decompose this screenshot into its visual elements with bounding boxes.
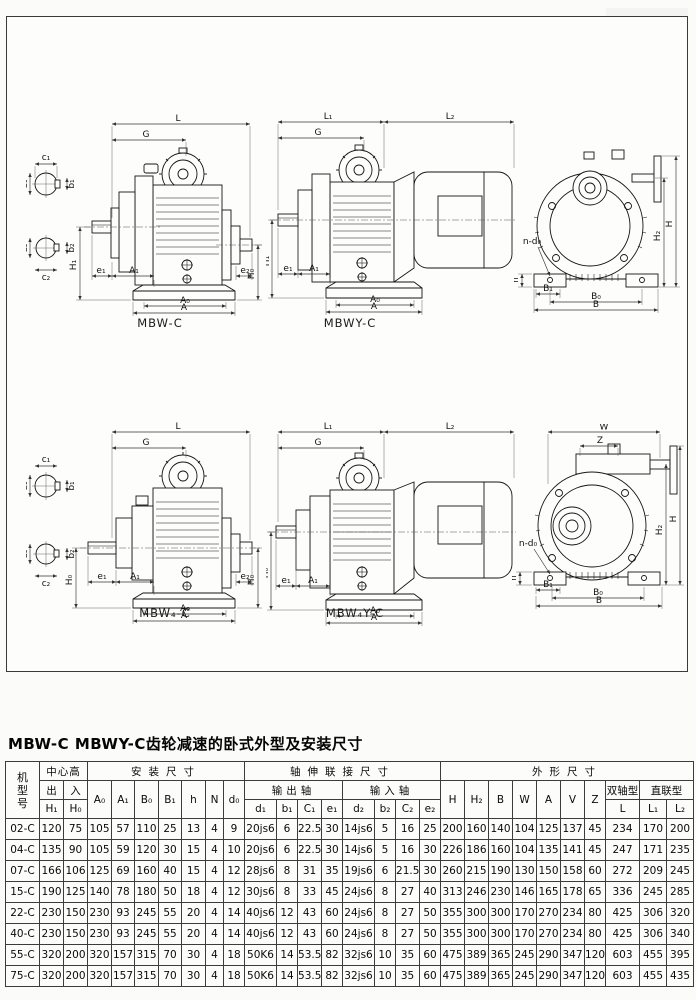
table-cell: 215 (465, 861, 489, 882)
table-cell: 10 (375, 945, 396, 966)
table-cell: 200 (441, 819, 465, 840)
table-cell: 146 (513, 882, 537, 903)
header-B1: B₁ (159, 781, 182, 819)
table-cell: 90 (64, 840, 88, 861)
table-cell: 55 (159, 924, 182, 945)
dim-b1: b₁ (67, 481, 77, 491)
table-cell: 4 (206, 966, 224, 987)
table-cell: 80 (585, 924, 606, 945)
table-row: 22-C23015023093245552041440js612436024js… (6, 903, 694, 924)
table-cell: 365 (489, 966, 513, 987)
drawing-mbw4yc-side-view: L₁ L₂ G H₀ e₁ A₁ A₀ A (266, 420, 518, 627)
table-cell: 6 (277, 819, 298, 840)
table-cell: 10 (375, 966, 396, 987)
header-model: 机 型 号 (6, 762, 40, 819)
table-cell: 5 (375, 840, 396, 861)
header-C2: C₂ (396, 800, 420, 819)
dim-G: G (315, 128, 322, 138)
table-cell: 270 (537, 903, 561, 924)
table-cell: 30js6 (245, 882, 277, 903)
dim-B1: B₁ (543, 580, 553, 590)
dim-A1: A₁ (129, 266, 139, 276)
table-row: 40-C23015023093245552041440js612436024js… (6, 924, 694, 945)
table-cell: 603 (606, 945, 640, 966)
table-cell: 315 (135, 966, 159, 987)
table-cell: 25 (420, 819, 441, 840)
table-cell: 166 (40, 861, 64, 882)
header-dual-shaft: 双轴型 (606, 781, 640, 800)
table-cell: 4 (206, 924, 224, 945)
table-cell: 171 (640, 840, 667, 861)
table-cell: 30 (322, 819, 343, 840)
table-cell: 125 (64, 882, 88, 903)
housing (534, 150, 661, 287)
model-cell: 15-C (6, 882, 40, 903)
dim-G: G (143, 438, 150, 448)
table-cell: 32js6 (343, 945, 375, 966)
table-cell: 125 (537, 819, 561, 840)
header-input-shaft: 输入轴 (343, 781, 441, 800)
table-cell: 22.5 (298, 840, 322, 861)
table-cell: 60 (322, 903, 343, 924)
table-cell: 31 (298, 861, 322, 882)
table-cell: 320 (88, 945, 112, 966)
table-cell: 165 (537, 882, 561, 903)
model-cell: 40-C (6, 924, 40, 945)
table-cell: 300 (489, 903, 513, 924)
table-cell: 35 (396, 966, 420, 987)
table-cell: 50K6 (245, 945, 277, 966)
table-cell: 190 (489, 861, 513, 882)
table-cell: 8 (375, 903, 396, 924)
table-cell: 27 (396, 882, 420, 903)
table-cell: 245 (513, 966, 537, 987)
table-header: 机 型 号 中心高 安装尺寸 轴伸联接尺寸 外形尺寸 出 入 A₀ A₁ B₀ … (6, 762, 694, 819)
drawing-mbwc-side-view: c₁ b₁ d₁ c₂ b₂ d₂ (26, 112, 264, 317)
model-cell: 04-C (6, 840, 40, 861)
header-H: H (441, 781, 465, 819)
table-cell: 200 (64, 966, 88, 987)
table-cell: 245 (135, 924, 159, 945)
dim-e1: e₁ (96, 266, 106, 276)
table-cell: 10 (224, 840, 245, 861)
catalog-page: { "page": { "title": "MBW-C MBWY-C齿轮减速的卧… (0, 0, 696, 1000)
table-cell: 170 (513, 924, 537, 945)
table-cell: 12 (224, 882, 245, 903)
table-cell: 20 (182, 903, 206, 924)
dim-d2: d₂ (26, 243, 30, 253)
table-cell: 9 (224, 819, 245, 840)
table-cell: 20 (182, 924, 206, 945)
table-cell: 70 (159, 945, 182, 966)
table-cell: 300 (489, 924, 513, 945)
header-d1: d₁ (245, 800, 277, 819)
table-cell: 35 (396, 945, 420, 966)
header-H0: H₀ (64, 800, 88, 819)
dim-e1: e₁ (97, 572, 107, 582)
table-cell: 30 (420, 840, 441, 861)
table-cell: 60 (420, 966, 441, 987)
dim-b2: b₂ (67, 549, 77, 559)
table-cell: 300 (465, 903, 489, 924)
table-cell: 15 (182, 861, 206, 882)
table-cell: 200 (667, 819, 694, 840)
table-row: 07-C16610612569160401541228js68313519js6… (6, 861, 694, 882)
header-A: A (537, 781, 561, 819)
dim-G: G (315, 438, 322, 448)
table-cell: 24js6 (343, 924, 375, 945)
table-cell: 30 (420, 861, 441, 882)
table-cell: 234 (561, 924, 585, 945)
table-cell: 8 (277, 882, 298, 903)
table-cell: 16 (396, 840, 420, 861)
header-d2: d₂ (343, 800, 375, 819)
table-cell: 33 (298, 882, 322, 903)
table-cell: 180 (135, 882, 159, 903)
table-cell: 455 (640, 945, 667, 966)
table-cell: 230 (489, 882, 513, 903)
header-e1: e₁ (322, 800, 343, 819)
table-cell: 475 (441, 966, 465, 987)
header-B: B (489, 781, 513, 819)
table-cell: 150 (537, 861, 561, 882)
model-cell: 02-C (6, 819, 40, 840)
dim-L: L (175, 422, 180, 432)
table-cell: 186 (465, 840, 489, 861)
table-cell: 389 (465, 945, 489, 966)
header-center-height: 中心高 (40, 762, 88, 781)
dim-h: h (512, 575, 519, 581)
table-cell: 82 (322, 945, 343, 966)
table-cell: 395 (667, 945, 694, 966)
table-row: 55-C320200320157315703041850K61453.58232… (6, 945, 694, 966)
table-cell: 234 (561, 903, 585, 924)
table-cell: 6 (375, 861, 396, 882)
table-cell: 137 (561, 819, 585, 840)
table-cell: 135 (40, 840, 64, 861)
table-cell: 120 (585, 966, 606, 987)
header-V: V (561, 781, 585, 819)
header-b2: b₂ (375, 800, 396, 819)
table-cell: 158 (561, 861, 585, 882)
table-cell: 306 (640, 903, 667, 924)
table-row: 15-C19012514078180501841230js68334524js6… (6, 882, 694, 903)
dim-e1: e₁ (281, 576, 291, 586)
table-cell: 75 (64, 819, 88, 840)
dim-n-d0: n-d₀ (523, 237, 542, 247)
dim-h: h (514, 277, 521, 283)
dim-A1: A₁ (308, 576, 318, 586)
table-cell: 20js6 (245, 819, 277, 840)
dim-A1: A₁ (309, 264, 319, 274)
table-cell: 45 (585, 840, 606, 861)
dim-c1: c₁ (42, 153, 51, 163)
table-cell: 12 (277, 924, 298, 945)
header-W: W (513, 781, 537, 819)
header-L2: L₂ (667, 800, 694, 819)
table-cell: 125 (88, 861, 112, 882)
table-cell: 230 (40, 924, 64, 945)
table-cell: 40js6 (245, 903, 277, 924)
header-L: L (606, 800, 640, 819)
table-cell: 13 (182, 819, 206, 840)
page-title: MBW-C MBWY-C齿轮减速的卧式外型及安装尺寸 (8, 733, 363, 754)
table-cell: 603 (606, 966, 640, 987)
table-cell: 14 (224, 903, 245, 924)
table-row: 04-C1359010559120301541020js6622.53014js… (6, 840, 694, 861)
table-cell: 35 (322, 861, 343, 882)
table-cell: 18 (224, 945, 245, 966)
header-A0: A₀ (88, 781, 112, 819)
dim-W: W (600, 424, 609, 433)
table-cell: 50K6 (245, 966, 277, 987)
table-cell: 32js6 (343, 966, 375, 987)
table-cell: 27 (396, 924, 420, 945)
table-cell: 4 (206, 882, 224, 903)
dim-H0: H₀ (266, 567, 271, 578)
dim-B: B (596, 596, 602, 606)
table-cell: 45 (322, 882, 343, 903)
dim-H1: H₁ (69, 259, 79, 270)
table-cell: 290 (537, 966, 561, 987)
header-H2: H₂ (465, 781, 489, 819)
table-cell: 105 (88, 840, 112, 861)
table-cell: 69 (112, 861, 135, 882)
dim-c1: c₁ (42, 455, 51, 465)
drawing-rear-view-top: H H₂ n-d₀ h B₁ B₀ B (514, 132, 684, 314)
table-cell: 320 (88, 966, 112, 987)
housing (534, 444, 677, 585)
header-shaft: 轴伸联接尺寸 (245, 762, 441, 781)
caption-mbw4c: MBW₄-C (105, 606, 225, 620)
table-body: 02-C120751055711025134920js6622.53014js6… (6, 819, 694, 987)
table-cell: 157 (112, 945, 135, 966)
dim-e2: e₂ (240, 266, 250, 276)
table-cell: 285 (667, 882, 694, 903)
table-cell: 4 (206, 903, 224, 924)
table-cell: 245 (640, 882, 667, 903)
table-cell: 389 (465, 966, 489, 987)
dim-b2: b₂ (67, 243, 77, 253)
table-cell: 170 (640, 819, 667, 840)
header-C1: C₁ (298, 800, 322, 819)
table-cell: 347 (561, 966, 585, 987)
table-cell: 150 (64, 903, 88, 924)
table-cell: 230 (88, 903, 112, 924)
table-cell: 18 (224, 966, 245, 987)
dim-e2: e₂ (240, 572, 250, 582)
header-b1: b₁ (277, 800, 298, 819)
table-cell: 313 (441, 882, 465, 903)
table-cell: 110 (135, 819, 159, 840)
header-B0: B₀ (135, 781, 159, 819)
table-cell: 120 (585, 945, 606, 966)
table-cell: 200 (64, 945, 88, 966)
table-cell: 28js6 (245, 861, 277, 882)
table-cell: 60 (585, 861, 606, 882)
caption-mbwyc: MBWY-C (290, 316, 410, 330)
header-output-shaft: 输出轴 (245, 781, 343, 800)
table-cell: 50 (159, 882, 182, 903)
table-cell: 15 (182, 840, 206, 861)
table-cell: 230 (88, 924, 112, 945)
table-cell: 104 (513, 840, 537, 861)
table-cell: 8 (277, 861, 298, 882)
table-cell: 455 (640, 966, 667, 987)
table-cell: 178 (561, 882, 585, 903)
table-cell: 320 (40, 945, 64, 966)
dim-n-d0: n-d₀ (519, 539, 538, 549)
table-cell: 247 (606, 840, 640, 861)
table-cell: 14js6 (343, 819, 375, 840)
table-cell: 25 (159, 819, 182, 840)
table-cell: 235 (667, 840, 694, 861)
table-cell: 93 (112, 924, 135, 945)
table-cell: 50 (420, 903, 441, 924)
caption-mbw4yc: MBW₄Y-C (290, 606, 420, 620)
table-cell: 270 (537, 924, 561, 945)
drawing-mbw4c-side-view: c₁ b₁ d₁ c₂ b₂ d₂ (26, 420, 264, 625)
table-cell: 8 (375, 924, 396, 945)
table-cell: 209 (640, 861, 667, 882)
table-cell: 234 (606, 819, 640, 840)
table-row: 75-C320200320157315703041850K61453.58232… (6, 966, 694, 987)
table-cell: 272 (606, 861, 640, 882)
table-cell: 40 (159, 861, 182, 882)
table-cell: 160 (465, 819, 489, 840)
reducer-motor-body (270, 145, 516, 298)
reducer-body (80, 452, 262, 608)
table-cell: 130 (513, 861, 537, 882)
table-cell: 355 (441, 924, 465, 945)
table-cell: 80 (585, 903, 606, 924)
table-cell: 226 (441, 840, 465, 861)
table-row: 02-C120751055711025134920js6622.53014js6… (6, 819, 694, 840)
table-cell: 30 (159, 840, 182, 861)
table-cell: 104 (513, 819, 537, 840)
table-cell: 475 (441, 945, 465, 966)
dim-d1: d₁ (26, 481, 30, 491)
table-cell: 425 (606, 924, 640, 945)
table-cell: 320 (40, 966, 64, 987)
header-L1: L₁ (640, 800, 667, 819)
dim-e1: e₁ (283, 264, 293, 274)
table-cell: 170 (513, 903, 537, 924)
caption-mbwc: MBW-C (100, 316, 220, 330)
table-cell: 14js6 (343, 840, 375, 861)
table-cell: 78 (112, 882, 135, 903)
dim-d2: d₂ (26, 549, 30, 559)
header-install: 安装尺寸 (88, 762, 245, 781)
table-cell: 12 (224, 861, 245, 882)
table-cell: 355 (441, 903, 465, 924)
table-cell: 14 (277, 966, 298, 987)
table-cell: 19js6 (343, 861, 375, 882)
table-cell: 53.5 (298, 966, 322, 987)
table-cell: 50 (420, 924, 441, 945)
table-cell: 435 (667, 966, 694, 987)
table-cell: 40 (420, 882, 441, 903)
table-cell: 306 (640, 924, 667, 945)
header-Z: Z (585, 781, 606, 819)
table-cell: 340 (667, 924, 694, 945)
table-cell: 290 (537, 945, 561, 966)
dim-L2: L₂ (446, 422, 455, 432)
table-cell: 260 (441, 861, 465, 882)
table-cell: 5 (375, 819, 396, 840)
table-cell: 365 (489, 945, 513, 966)
table-cell: 105 (88, 819, 112, 840)
model-cell: 75-C (6, 966, 40, 987)
table-cell: 140 (489, 819, 513, 840)
table-cell: 6 (277, 840, 298, 861)
table-cell: 4 (206, 840, 224, 861)
table-cell: 120 (135, 840, 159, 861)
dim-A: A (371, 302, 378, 312)
table-cell: 245 (667, 861, 694, 882)
table-cell: 24js6 (343, 882, 375, 903)
header-d0: d₀ (224, 781, 245, 819)
table-cell: 157 (112, 966, 135, 987)
table-cell: 320 (667, 903, 694, 924)
dim-H2: H₂ (655, 524, 665, 535)
dim-A1: A₁ (130, 572, 140, 582)
header-e2: e₂ (420, 800, 441, 819)
table-cell: 82 (322, 966, 343, 987)
table-cell: 12 (277, 903, 298, 924)
drawing-rear-view-bottom: W Z H H₂ n-d₀ h B₁ B₀ B (512, 424, 687, 614)
table-cell: 300 (465, 924, 489, 945)
table-cell: 8 (375, 882, 396, 903)
table-cell: 160 (135, 861, 159, 882)
table-cell: 18 (182, 882, 206, 903)
table-cell: 60 (420, 945, 441, 966)
table-cell: 4 (206, 945, 224, 966)
table-cell: 16 (396, 819, 420, 840)
dim-L: L (175, 114, 180, 124)
dim-d1: d₁ (26, 179, 30, 189)
table-cell: 106 (64, 861, 88, 882)
dim-H: H (665, 221, 675, 228)
table-cell: 120 (40, 819, 64, 840)
model-cell: 55-C (6, 945, 40, 966)
table-cell: 245 (135, 903, 159, 924)
drawing-mbwyc-side-view: L₁ L₂ G H₁ e₁ A₁ A₀ A (266, 110, 518, 317)
table-cell: 43 (298, 903, 322, 924)
dim-L1: L₁ (324, 112, 333, 122)
header-direct: 直联型 (640, 781, 694, 800)
dim-B: B (593, 300, 599, 310)
table-cell: 65 (585, 882, 606, 903)
shaft-end-details: c₁ b₁ d₁ c₂ b₂ d₂ (26, 455, 77, 589)
table-cell: 55 (159, 903, 182, 924)
dim-L2: L₂ (446, 112, 455, 122)
table-cell: 57 (112, 819, 135, 840)
table-cell: 30 (182, 945, 206, 966)
reducer-motor-body (268, 453, 516, 610)
table-cell: 4 (206, 819, 224, 840)
table-cell: 315 (135, 945, 159, 966)
table-cell: 4 (206, 861, 224, 882)
dim-H2: H₂ (653, 230, 663, 241)
dim-c2: c₂ (42, 273, 51, 283)
model-cell: 07-C (6, 861, 40, 882)
dim-B1: B₁ (543, 284, 553, 294)
table-cell: 22.5 (298, 819, 322, 840)
table-cell: 160 (489, 840, 513, 861)
dim-A: A (181, 303, 188, 313)
table-cell: 43 (298, 924, 322, 945)
